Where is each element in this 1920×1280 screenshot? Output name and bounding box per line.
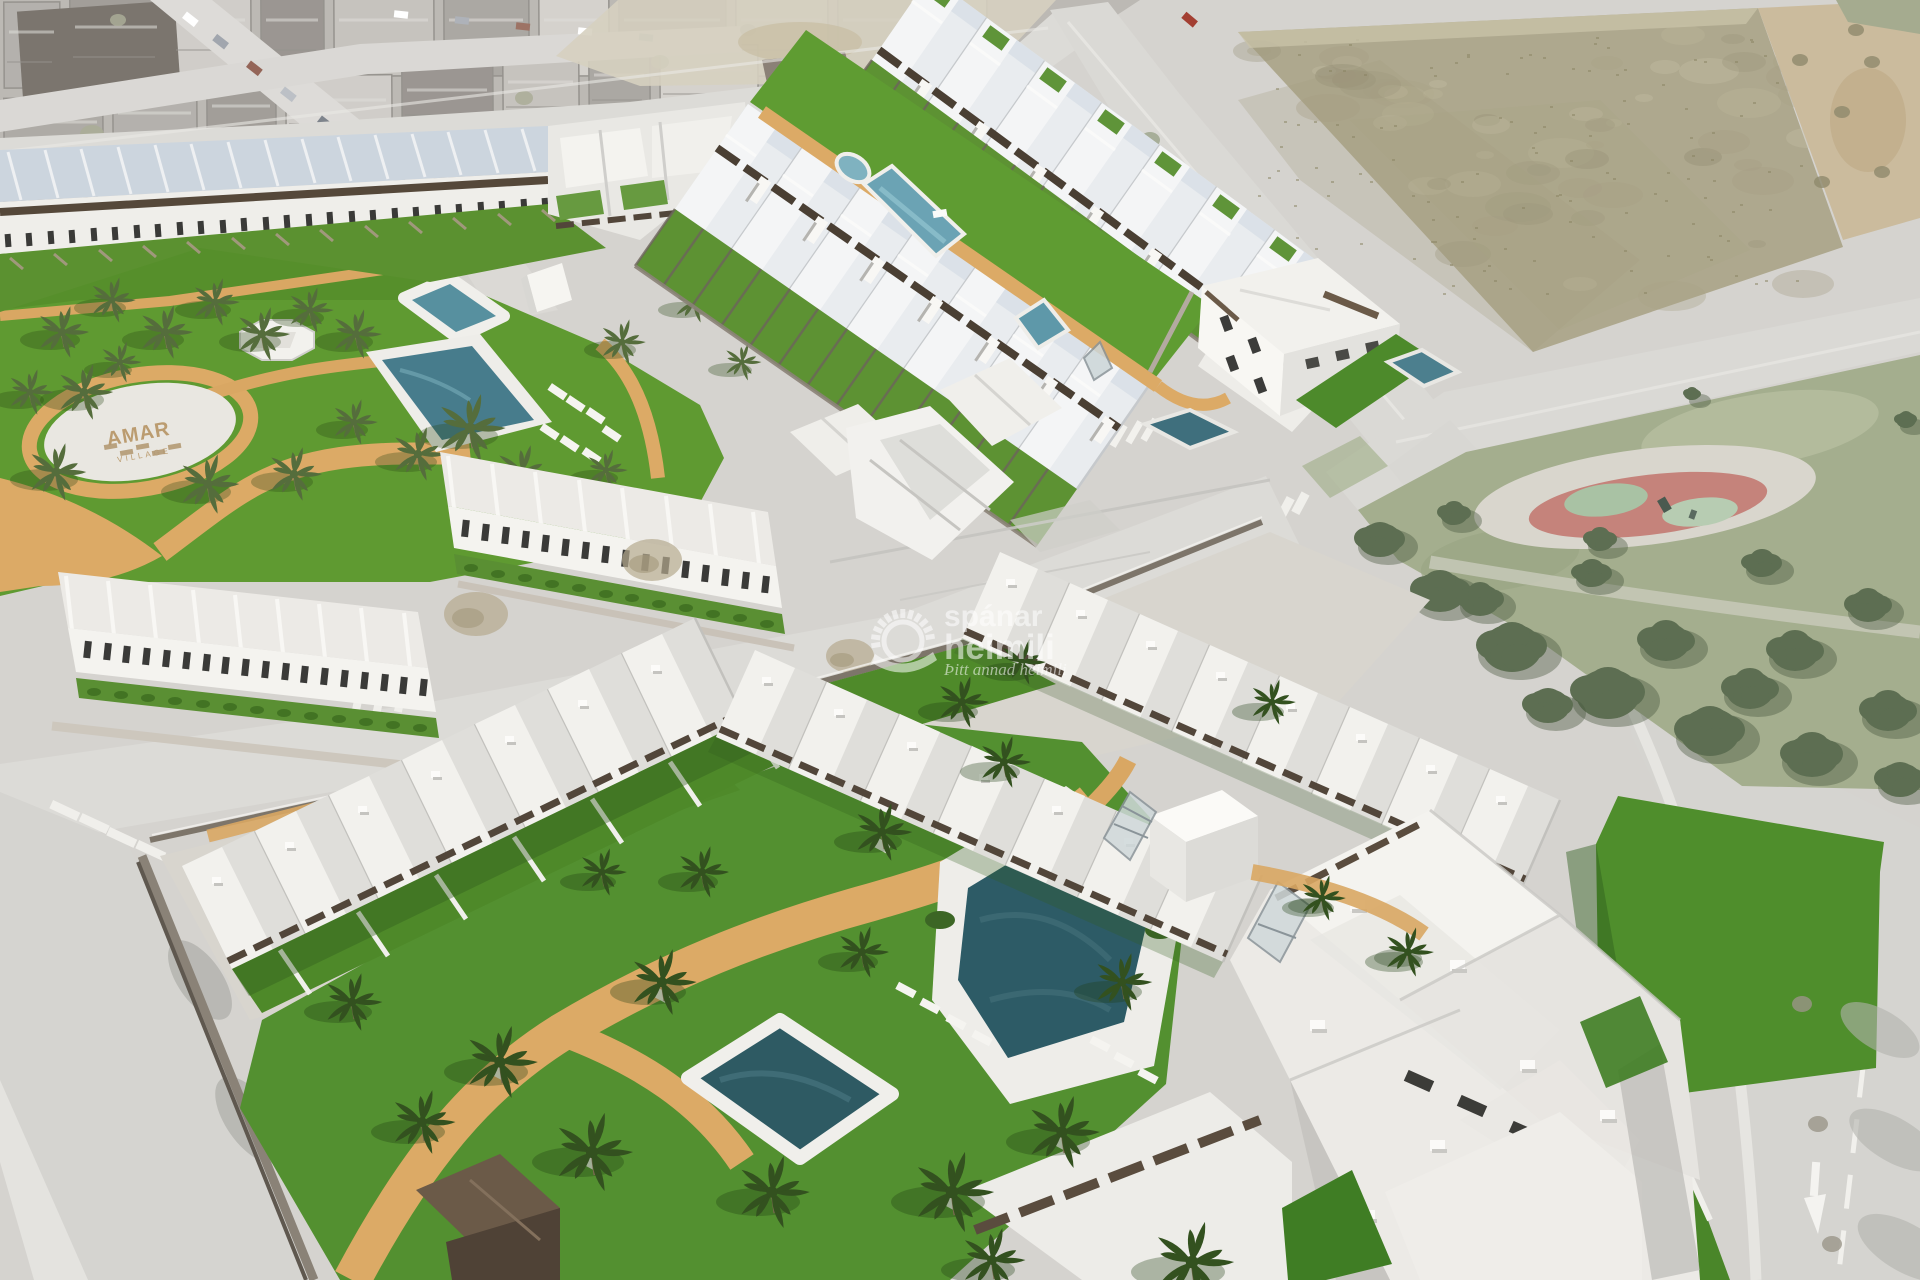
svg-text:Þitt annad heimili: Þitt annad heimili [943,660,1067,679]
